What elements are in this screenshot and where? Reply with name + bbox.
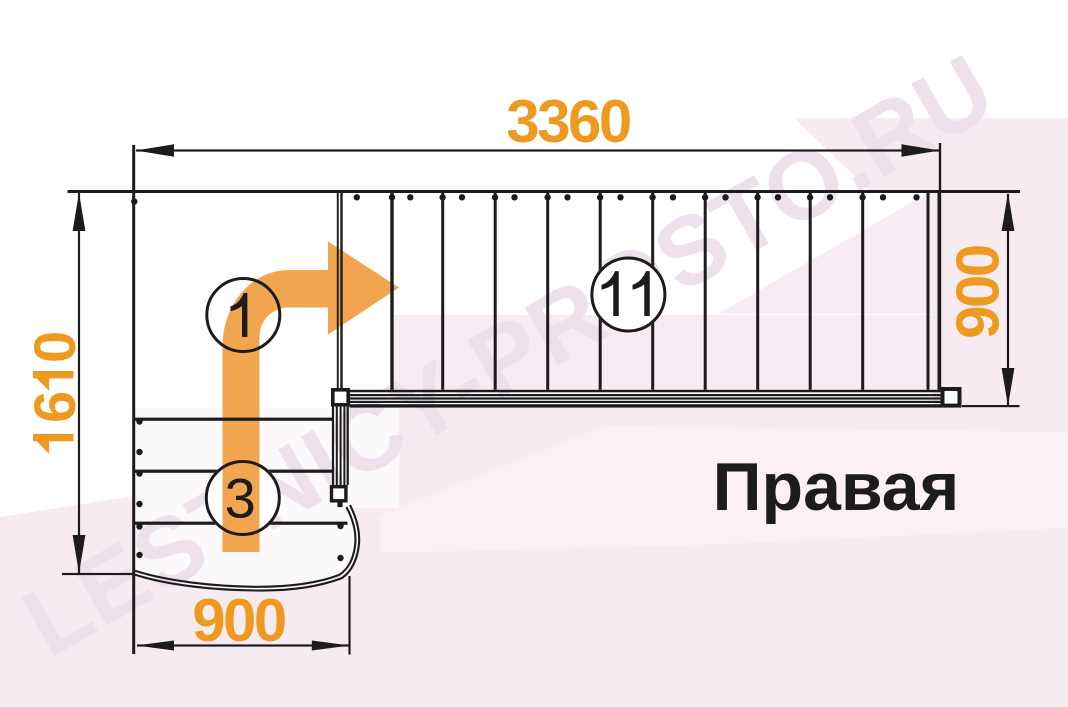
svg-text:3360: 3360 [506,88,630,155]
svg-text:900: 900 [192,587,285,654]
svg-text:3: 3 [225,467,256,530]
svg-text:Правая: Правая [713,449,960,525]
svg-text:0: 0 [23,331,88,363]
svg-text:900: 900 [945,246,1012,339]
svg-text:6: 6 [23,391,88,423]
